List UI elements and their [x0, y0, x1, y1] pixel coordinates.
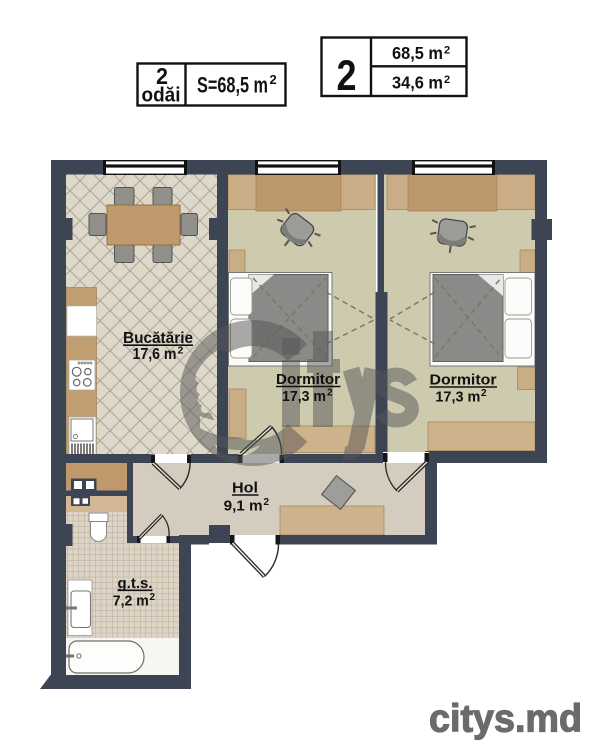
- svg-text:2: 2: [337, 52, 357, 100]
- svg-text:34,6 m: 34,6 m: [392, 73, 443, 93]
- svg-text:Hol: Hol: [232, 480, 258, 497]
- svg-text:17,3 m: 17,3 m: [282, 388, 326, 405]
- svg-text:g.t.s.: g.t.s.: [118, 575, 153, 592]
- svg-text:Dormitor: Dormitor: [430, 372, 497, 389]
- svg-text:2: 2: [444, 45, 450, 57]
- svg-text:citys.md: citys.md: [429, 698, 582, 741]
- svg-text:17,3 m: 17,3 m: [435, 389, 480, 406]
- svg-text:2: 2: [481, 388, 487, 399]
- svg-text:2: 2: [327, 388, 333, 399]
- svg-text:Dormitor: Dormitor: [276, 371, 340, 388]
- svg-text:2: 2: [444, 74, 450, 86]
- svg-text:2: 2: [150, 592, 156, 603]
- svg-text:2: 2: [178, 345, 184, 357]
- svg-text:odăi: odăi: [142, 85, 181, 107]
- svg-text:9,1 m: 9,1 m: [224, 498, 263, 515]
- svg-text:2: 2: [264, 497, 270, 508]
- svg-text:S=68,5 m: S=68,5 m: [197, 73, 268, 98]
- svg-text:17,6 m: 17,6 m: [133, 346, 177, 363]
- svg-text:7,2 m: 7,2 m: [113, 593, 149, 610]
- svg-text:2: 2: [270, 72, 277, 87]
- svg-text:68,5 m: 68,5 m: [392, 43, 443, 63]
